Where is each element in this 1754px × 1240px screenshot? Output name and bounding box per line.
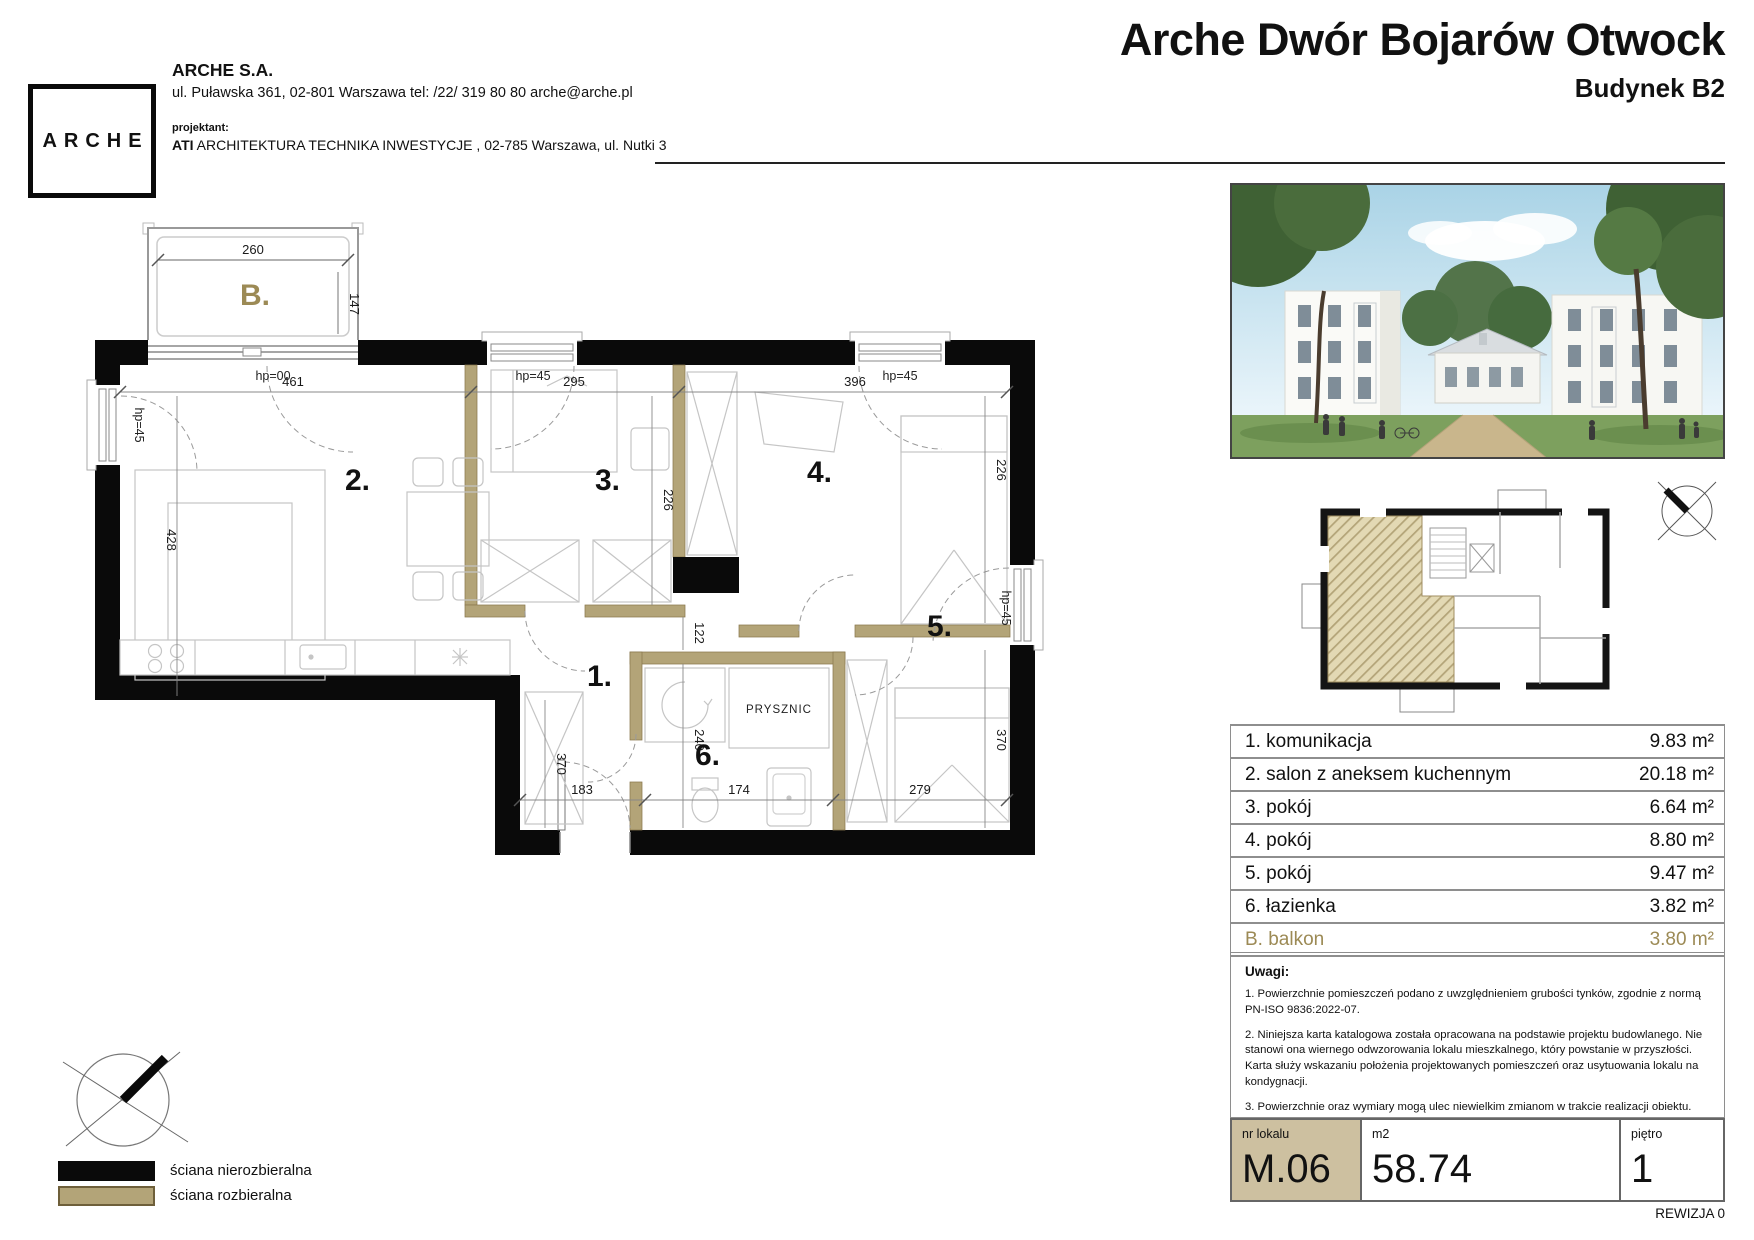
company-address: ul. Puławska 361, 02-801 Warszawa tel: /…	[172, 85, 633, 101]
room-label-4: 4.	[807, 456, 832, 489]
room-area: 9.47 m²	[1650, 863, 1714, 885]
chair	[631, 428, 669, 470]
solid-wall-swatch	[58, 1161, 155, 1181]
shaft-wall	[673, 557, 739, 593]
hp00-label: hp=00	[255, 369, 290, 383]
legend-label: ściana nierozbieralna	[170, 1162, 312, 1179]
designer-line: ATI ARCHITEKTURA TECHNIKA INWESTYCJE , 0…	[172, 137, 667, 153]
legend-item: ściana rozbieralna	[58, 1183, 312, 1208]
unit-floor-label: piętro	[1631, 1127, 1713, 1141]
table-row: 6. łazienka 3.82 m²	[1231, 889, 1724, 922]
page-title: Arche Dwór Bojarów Otwock	[1120, 16, 1725, 63]
unit-area-label: m2	[1372, 1127, 1609, 1141]
title-block: Arche Dwór Bojarów Otwock Budynek B2	[1120, 16, 1725, 104]
note-item: 3. Powierzchnie oraz wymiary mogą ulec n…	[1245, 1100, 1710, 1116]
notes-title: Uwagi:	[1245, 964, 1710, 979]
hp-labels: hp=00 hp=45 hp=45 hp=45 hp=45	[132, 369, 1013, 626]
legend-item: ściana nierozbieralna	[58, 1158, 312, 1183]
shower-label: PRYSZNIC	[746, 704, 812, 716]
hp45-label: hp=45	[515, 369, 550, 383]
dim-370r: 370	[994, 729, 1009, 751]
room-area: 3.82 m²	[1650, 896, 1714, 918]
note-item: 1. Powierzchnie pomieszczeń podano z uwz…	[1245, 987, 1710, 1019]
balcony: 260 147 B.	[143, 223, 363, 345]
building-subtitle: Budynek B2	[1120, 73, 1725, 104]
key-plan	[1300, 488, 1630, 718]
chair	[413, 572, 443, 600]
table-row: 4. pokój 8.80 m²	[1231, 823, 1724, 856]
room-area: 6.64 m²	[1650, 797, 1714, 819]
balcony-label: B.	[240, 279, 270, 312]
bed	[901, 416, 1007, 624]
room-name: 1. komunikacja	[1245, 731, 1372, 753]
dim-174: 174	[728, 782, 750, 797]
table-row: 3. pokój 6.64 m²	[1231, 790, 1724, 823]
wall-legend: ściana nierozbieralna ściana rozbieralna	[58, 1158, 312, 1208]
company-name: ARCHE S.A.	[172, 60, 633, 81]
room-name: 2. salon z aneksem kuchennym	[1245, 764, 1511, 786]
legend-label: ściana rozbieralna	[170, 1187, 292, 1204]
dim-p4-d: 226	[994, 459, 1009, 481]
table-row: 5. pokój 9.47 m²	[1231, 856, 1724, 889]
table-row: 2. salon z aneksem kuchennym 20.18 m²	[1231, 757, 1724, 790]
arche-logo: ARCHE	[28, 84, 156, 198]
arche-logo-text: ARCHE	[35, 130, 148, 153]
chair	[413, 458, 443, 486]
compass-icon	[1652, 476, 1722, 546]
dim-p3-d: 226	[661, 489, 676, 511]
dim-183: 183	[571, 782, 593, 797]
unit-floor-value: 1	[1631, 1149, 1713, 1189]
room-area: 20.18 m²	[1639, 764, 1714, 786]
room-label-1: 1.	[587, 660, 612, 693]
table-row-balcony: B. balkon 3.80 m²	[1231, 922, 1724, 955]
unit-number-value: M.06	[1242, 1149, 1350, 1189]
dim-salon-d: 428	[164, 529, 179, 551]
unit-number-label: nr lokalu	[1242, 1127, 1350, 1141]
room-area: 8.80 m²	[1650, 830, 1714, 852]
dim-p4-w: 396	[844, 374, 866, 389]
dim-279: 279	[909, 782, 931, 797]
designer-label: projektant:	[172, 122, 667, 134]
dim-balcony-width: 260	[242, 242, 264, 257]
room-area: 9.83 m²	[1650, 731, 1714, 753]
room-name: 4. pokój	[1245, 830, 1312, 852]
project-visualization	[1230, 183, 1725, 459]
notes-section: Uwagi: 1. Powierzchnie pomieszczeń podan…	[1230, 952, 1725, 1118]
rooms-table: 1. komunikacja 9.83 m² 2. salon z anekse…	[1230, 724, 1725, 957]
designer-abbr: ATI	[172, 137, 194, 153]
unit-area-value: 58.74	[1372, 1149, 1609, 1189]
shower-tray	[645, 668, 725, 742]
dim-hall-d: 122	[692, 622, 707, 644]
hp45-label: hp=45	[999, 590, 1013, 625]
room-name: 6. łazienka	[1245, 896, 1336, 918]
floor-plan: 260 147 B.	[55, 220, 1055, 920]
hp45-label: hp=45	[882, 369, 917, 383]
catalog-sheet: ARCHE ARCHE S.A. ul. Puławska 361, 02-80…	[0, 0, 1754, 1240]
bed	[895, 688, 1009, 822]
room-name: 5. pokój	[1245, 863, 1312, 885]
unit-floor-cell: piętro 1	[1621, 1120, 1723, 1200]
room-name: B. balkon	[1245, 929, 1324, 951]
note-item: 2. Niniejsza karta katalogowa została op…	[1245, 1028, 1710, 1091]
dimension-labels: 461 295 396 428 226 226 122 240 370 370 …	[164, 374, 1009, 797]
unit-summary: nr lokalu M.06 m2 58.74 piętro 1	[1230, 1118, 1725, 1202]
room-area: 3.80 m²	[1650, 929, 1714, 951]
revision-note: REWIZJA 0	[1230, 1206, 1725, 1221]
toilet	[692, 788, 718, 822]
designer-rest: ARCHITEKTURA TECHNIKA INWESTYCJE , 02-78…	[194, 137, 667, 153]
header-divider	[655, 162, 1725, 164]
desk	[755, 392, 843, 452]
hp45-label: hp=45	[132, 407, 146, 442]
company-info: ARCHE S.A. ul. Puławska 361, 02-801 Wars…	[172, 60, 633, 101]
bed	[491, 370, 617, 472]
unit-number-cell: nr lokalu M.06	[1232, 1120, 1362, 1200]
table-row: 1. komunikacja 9.83 m²	[1231, 724, 1724, 757]
room-label-2: 2.	[345, 464, 370, 497]
designer-info: projektant: ATI ARCHITEKTURA TECHNIKA IN…	[172, 122, 667, 153]
room-name: 3. pokój	[1245, 797, 1312, 819]
demountable-wall-swatch	[58, 1186, 155, 1206]
room-label-3: 3.	[595, 464, 620, 497]
unit-area-cell: m2 58.74	[1362, 1120, 1621, 1200]
dim-balcony-depth: 147	[347, 293, 362, 315]
dim-p3-w: 295	[563, 374, 585, 389]
room-label-5: 5.	[927, 610, 952, 643]
room-label-6: 6.	[695, 739, 720, 772]
washer-symbol	[662, 682, 708, 728]
dim-370l: 370	[554, 753, 569, 775]
